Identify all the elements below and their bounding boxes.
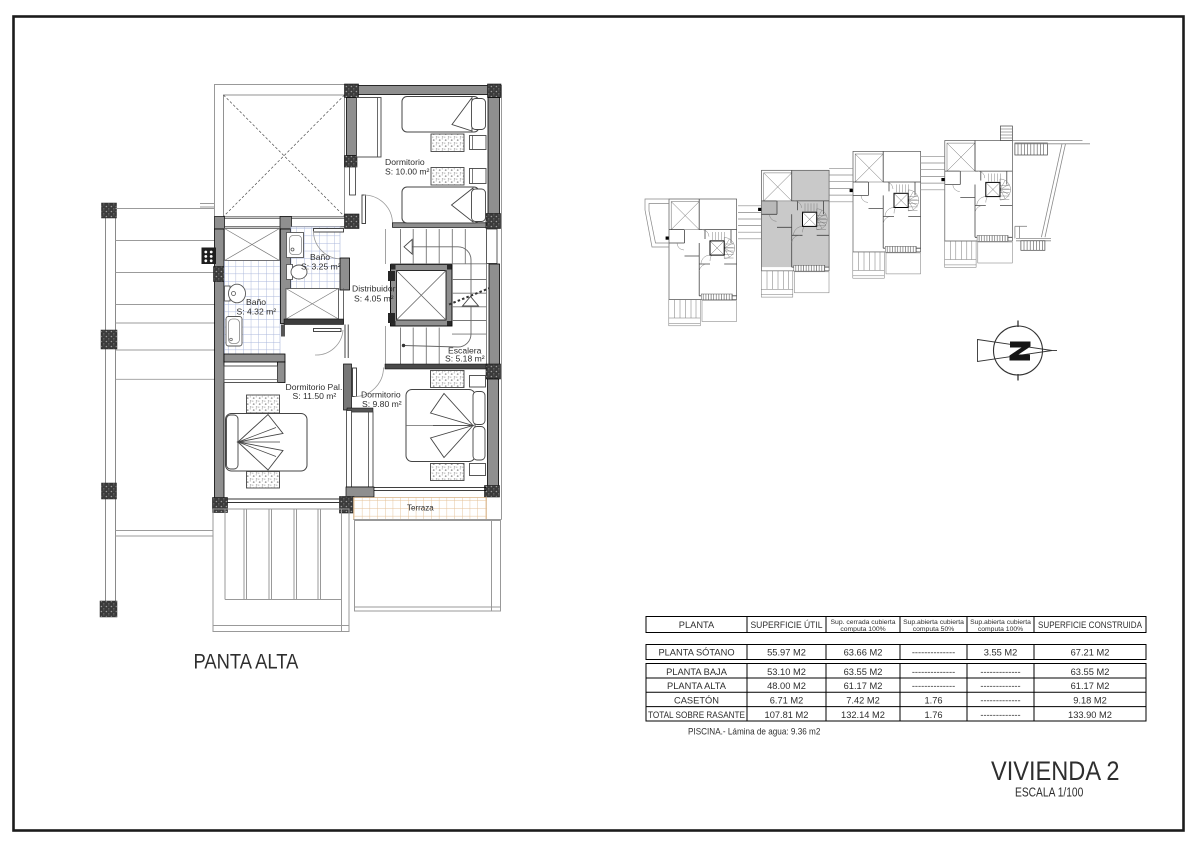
svg-text:-------------: ------------- bbox=[980, 695, 1020, 705]
svg-text:Sup.abierta cubierta: Sup.abierta cubierta bbox=[903, 619, 964, 626]
svg-text:PLANTA BAJA: PLANTA BAJA bbox=[666, 667, 728, 677]
svg-text:48.00 M2: 48.00 M2 bbox=[767, 681, 806, 691]
svg-text:ESCALA 1/100: ESCALA 1/100 bbox=[1015, 787, 1083, 800]
svg-text:3.55 M2: 3.55 M2 bbox=[984, 648, 1018, 658]
svg-text:TOTAL SOBRE RASANTE: TOTAL SOBRE RASANTE bbox=[648, 710, 745, 720]
svg-text:Sup. cerrada cubierta: Sup. cerrada cubierta bbox=[831, 619, 896, 626]
svg-text:Terraza: Terraza bbox=[407, 504, 434, 513]
svg-text:PLANTA: PLANTA bbox=[679, 620, 715, 630]
svg-text:Distribuidor: Distribuidor bbox=[352, 284, 396, 294]
svg-text:-------------: ------------- bbox=[980, 710, 1020, 720]
svg-text:133.90 M2: 133.90 M2 bbox=[1068, 710, 1112, 720]
svg-text:SUPERFICIE CONSTRUIDA: SUPERFICIE CONSTRUIDA bbox=[1038, 620, 1143, 630]
svg-text:PANTA ALTA: PANTA ALTA bbox=[194, 650, 299, 674]
svg-text:Sup.abierta cubierta: Sup.abierta cubierta bbox=[970, 619, 1031, 626]
svg-text:63.66 M2: 63.66 M2 bbox=[844, 648, 883, 658]
svg-text:Dormitorio: Dormitorio bbox=[361, 390, 401, 400]
svg-text:--------------: -------------- bbox=[912, 667, 955, 677]
svg-text:7.42 M2: 7.42 M2 bbox=[846, 695, 880, 705]
svg-text:S: 11.50 m²: S: 11.50 m² bbox=[293, 391, 337, 401]
svg-text:Baño: Baño bbox=[310, 252, 330, 262]
svg-text:1.76: 1.76 bbox=[924, 710, 942, 720]
svg-text:6.71 M2: 6.71 M2 bbox=[770, 695, 804, 705]
svg-text:-------------: ------------- bbox=[980, 667, 1020, 677]
svg-text:S: 3.25 m²: S: 3.25 m² bbox=[301, 262, 341, 272]
svg-text:Baño: Baño bbox=[246, 297, 266, 307]
svg-text:S: 4.05 m²: S: 4.05 m² bbox=[354, 294, 394, 304]
svg-text:Dormitorio: Dormitorio bbox=[385, 157, 425, 167]
svg-text:SUPERFICIE ÚTIL: SUPERFICIE ÚTIL bbox=[751, 620, 823, 630]
svg-text:61.17 M2: 61.17 M2 bbox=[844, 681, 883, 691]
svg-text:9.18 M2: 9.18 M2 bbox=[1073, 695, 1107, 705]
svg-text:67.21 M2: 67.21 M2 bbox=[1071, 648, 1110, 658]
svg-text:CASETÓN: CASETÓN bbox=[674, 695, 719, 705]
svg-text:107.81 M2: 107.81 M2 bbox=[765, 710, 809, 720]
svg-text:55.97 M2: 55.97 M2 bbox=[767, 648, 806, 658]
svg-text:--------------: -------------- bbox=[912, 681, 955, 691]
svg-text:VIVIENDA 2: VIVIENDA 2 bbox=[991, 757, 1119, 787]
svg-text:PLANTA ALTA: PLANTA ALTA bbox=[667, 681, 727, 691]
svg-text:-------------: ------------- bbox=[980, 681, 1020, 691]
svg-text:computa 100%: computa 100% bbox=[840, 626, 885, 633]
svg-text:1.76: 1.76 bbox=[924, 695, 942, 705]
svg-text:53.10 M2: 53.10 M2 bbox=[767, 667, 806, 677]
svg-text:S: 9.80 m²: S: 9.80 m² bbox=[362, 399, 402, 409]
svg-text:S: 4.32 m²: S: 4.32 m² bbox=[237, 307, 277, 317]
svg-text:computa 50%: computa 50% bbox=[913, 626, 955, 633]
svg-text:63.55 M2: 63.55 M2 bbox=[1071, 667, 1110, 677]
svg-text:PLANTA SÓTANO: PLANTA SÓTANO bbox=[658, 648, 734, 658]
svg-text:63.55 M2: 63.55 M2 bbox=[844, 667, 883, 677]
svg-text:61.17 M2: 61.17 M2 bbox=[1071, 681, 1110, 691]
svg-text:S: 5.18 m²: S: 5.18 m² bbox=[445, 354, 485, 364]
svg-text:132.14 M2: 132.14 M2 bbox=[841, 710, 885, 720]
svg-text:--------------: -------------- bbox=[912, 648, 955, 658]
svg-text:PISCINA.- Lámina de agua: 9.36: PISCINA.- Lámina de agua: 9.36 m2 bbox=[688, 726, 820, 737]
svg-text:S: 10.00 m²: S: 10.00 m² bbox=[385, 167, 430, 177]
svg-text:computa 100%: computa 100% bbox=[978, 626, 1023, 633]
